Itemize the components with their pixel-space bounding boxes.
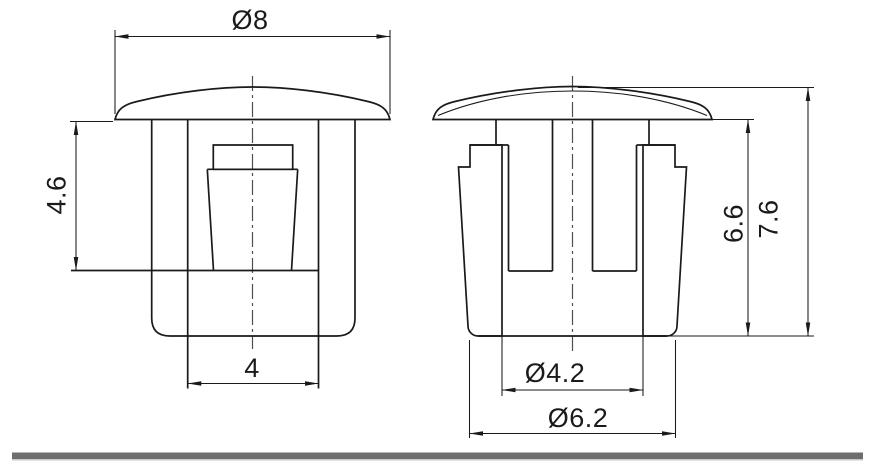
left-view: [71, 76, 390, 389]
dim-label-body-diameter: Ø6.2: [548, 403, 609, 433]
section-left-wall-hatched: [459, 145, 503, 336]
bottom-divider-bar-edge: [12, 459, 863, 461]
section-right-wall-hatched: [643, 145, 687, 336]
dim-label-inner-width: 4: [244, 353, 260, 383]
bottom-divider-bar: [12, 453, 863, 460]
dim-head-depth: 4.6: [42, 122, 114, 271]
dim-bore-diameter: Ø4.2: [502, 358, 643, 390]
dim-label-overall-height: 7.6: [754, 199, 784, 238]
left-body-outline: [152, 120, 355, 337]
dim-label-bore-diameter: Ø4.2: [525, 358, 586, 388]
right-view-section: [433, 76, 712, 396]
dim-inner-width: 4: [188, 353, 319, 384]
dim-inner-height: 6.6: [712, 120, 754, 337]
dim-overall-height: 7.6: [578, 88, 814, 337]
engineering-drawing-page: Ø8 4.6 4 6.6 7.6 Ø4.2 Ø6.2: [0, 0, 871, 473]
dim-label-inner-height: 6.6: [719, 204, 749, 243]
dim-label-cap-diameter: Ø8: [231, 5, 268, 35]
extension-lines: [115, 30, 390, 114]
dim-label-head-depth: 4.6: [42, 175, 72, 214]
line-work: Ø8 4.6 4 6.6 7.6 Ø4.2 Ø6.2: [42, 5, 815, 438]
left-cavity-walls: [188, 120, 319, 389]
dim-body-diameter: Ø6.2: [470, 340, 676, 438]
engineering-drawing-canvas: Ø8 4.6 4 6.6 7.6 Ø4.2 Ø6.2: [0, 0, 871, 473]
